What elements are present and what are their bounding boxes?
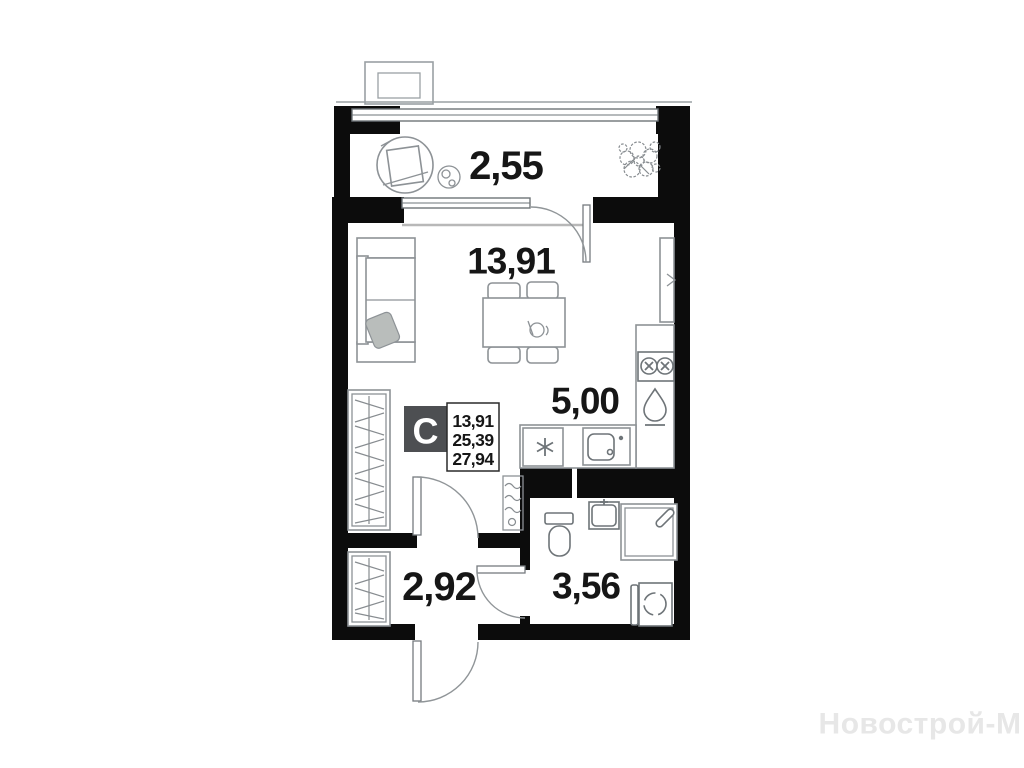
legend-total-area: 27,94 [452,449,494,469]
kitchen-sink-icon [583,428,630,465]
wall-bathroom-top-b [577,468,674,498]
balcony-door-leaf [583,205,590,262]
wall-balcony-bottom-right [593,197,690,223]
balcony-area-label: 2,55 [469,144,544,188]
wall-hallway-top-left [348,533,417,548]
chair-icon [527,347,558,363]
plant-icon [619,142,660,177]
hallway-area-label: 2,92 [402,565,476,609]
bathroom-sink-icon [589,499,619,529]
washing-machine-icon [631,583,672,626]
living-room-area-label: 13,91 [467,241,555,282]
legend-living-area: 13,91 [452,411,494,431]
toilet-icon [545,513,573,556]
dining-table-icon [483,282,565,363]
bathroom-door-leaf [477,566,525,573]
wall-hallway-top-right [478,533,520,548]
hallway-door-arc [417,477,478,538]
chair-icon [527,282,558,299]
shower-icon [621,504,677,560]
bathroom-door-arc [477,570,525,618]
hanging-chair-icon [377,137,433,193]
living-room-window [402,198,530,208]
stove-icon [638,352,674,381]
sofa-icon [357,238,415,362]
bathroom-door [477,566,525,618]
legend-unit-type: С [413,411,439,452]
wardrobe-lower-icon [348,552,390,626]
hallway-door [413,477,478,538]
floor-plan-page: 2,55 13,91 5,00 2,92 3,56 С 13,91 25,39 … [0,0,1024,768]
balcony-decor-icon [438,166,460,188]
kitchen-area-label: 5,00 [551,381,619,422]
watermark: Новострой-М [819,708,1022,741]
kitchen-tall-cabinet [660,238,675,322]
entrance-door-arc [418,642,478,702]
hallway-door-leaf [413,477,421,535]
chair-icon [488,347,520,363]
entrance-door-leaf [413,641,421,701]
wall-balcony-left [334,106,350,200]
wall-left-exterior [332,197,348,640]
wall-bathroom-left [520,496,530,570]
ac-basket [365,62,433,104]
balcony-glazing [352,109,658,121]
bathroom-area-label: 3,56 [552,566,620,607]
floor-plan-svg: 2,55 13,91 5,00 2,92 3,56 С 13,91 25,39 … [0,0,1024,768]
legend: С 13,91 25,39 27,94 [404,403,499,471]
wardrobe-upper-icon [348,390,390,530]
wall-right-exterior [674,223,690,640]
wall-bathroom-top-a [520,468,572,498]
entrance-door [413,641,478,702]
fridge-icon [523,428,563,466]
legend-area-without-balcony: 25,39 [452,430,494,450]
